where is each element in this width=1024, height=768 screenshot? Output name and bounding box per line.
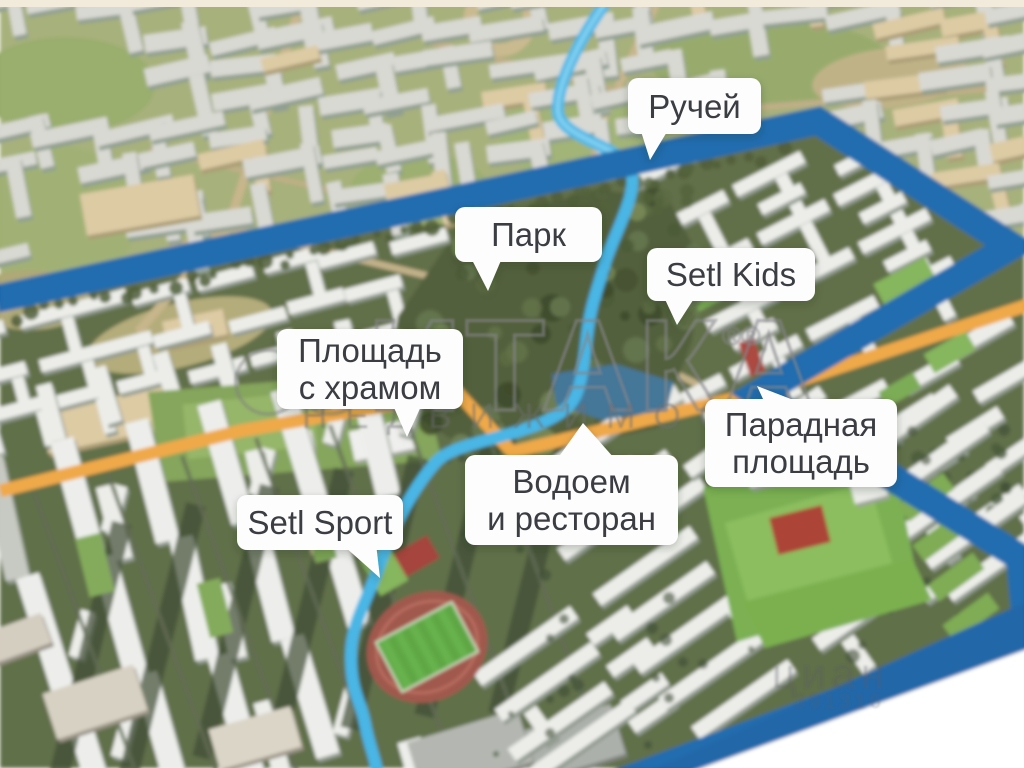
svg-text:и ресторан: и ресторан — [487, 500, 656, 537]
svg-text:®®: ®® — [722, 321, 760, 351]
svg-text:Setl Sport: Setl Sport — [248, 504, 393, 541]
svg-text:Парадная: Парадная — [725, 406, 877, 443]
svg-text:Setl Kids: Setl Kids — [666, 256, 796, 293]
svg-text:площадь: площадь — [732, 443, 870, 480]
svg-text:Ручей: Ручей — [648, 88, 741, 125]
svg-text:циан: циан — [772, 650, 890, 697]
svg-text:Парк: Парк — [491, 216, 566, 253]
svg-text:с храмом: с храмом — [299, 369, 442, 406]
svg-text:Водоем: Водоем — [512, 463, 630, 500]
svg-text:391316: 391316 — [794, 691, 885, 713]
svg-text:Площадь: Площадь — [298, 332, 442, 369]
